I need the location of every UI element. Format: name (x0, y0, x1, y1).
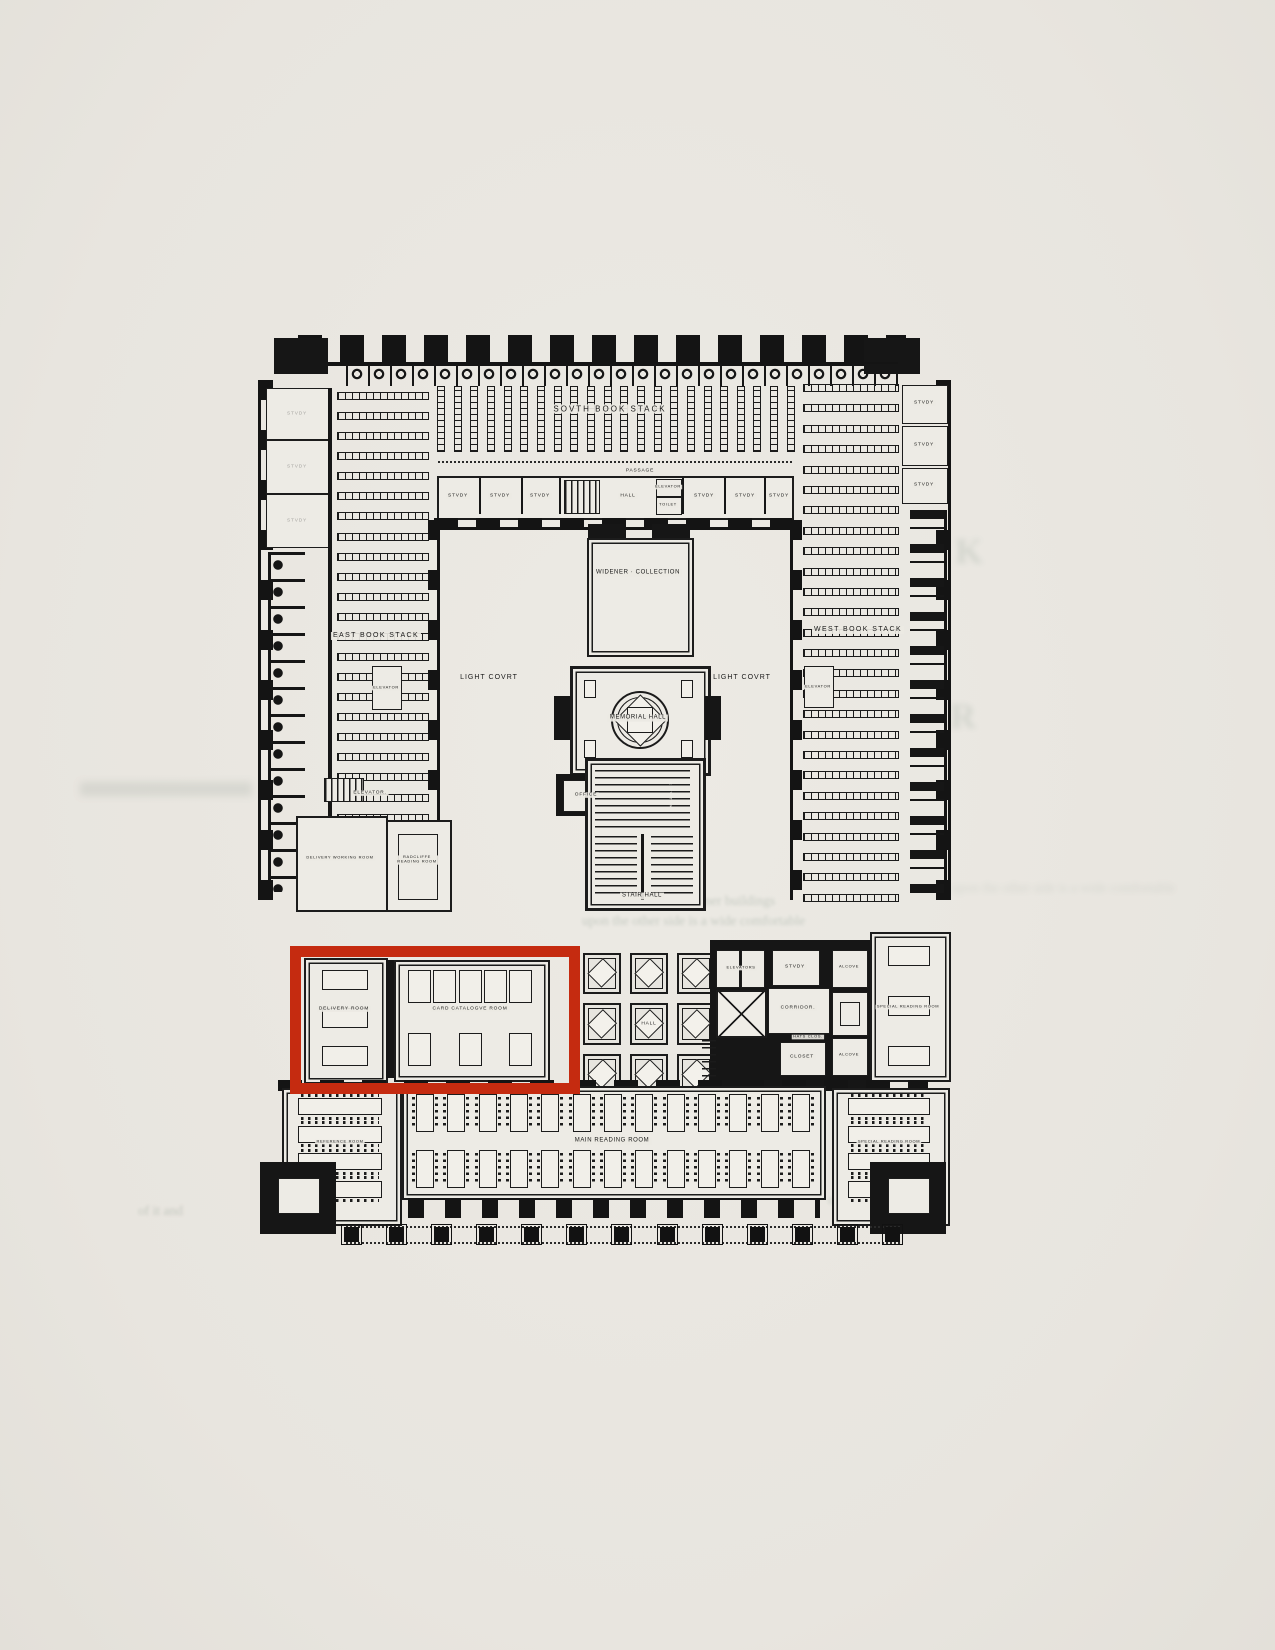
colshelf (520, 386, 528, 452)
memorial-hall-label: MEMORIAL HALL (608, 715, 668, 722)
pier (681, 740, 693, 758)
study-label: STVDY (767, 493, 790, 499)
study-label: STVDY (446, 493, 469, 499)
shelf (803, 527, 899, 535)
service-stair (702, 1040, 716, 1080)
bleed-letter: K (955, 530, 983, 572)
light-court-label: LIGHT COVRT (458, 674, 520, 682)
colshelf (687, 386, 695, 452)
hall-label: HALL (640, 1021, 658, 1027)
study-label: STVDY (733, 493, 756, 499)
shelf (803, 445, 899, 453)
shelf (803, 812, 899, 820)
shelf (337, 452, 429, 460)
alcove-label: ALCOVE (838, 965, 861, 970)
tblv (573, 1094, 591, 1132)
reference-room-label: REFERENCE ROOM (315, 1140, 365, 1145)
rect (888, 946, 930, 966)
portico-column (614, 1227, 629, 1242)
tblv (604, 1094, 622, 1132)
shelf (803, 568, 899, 576)
elevators-label: ELEVATORS (725, 966, 757, 971)
elevator-label: ELEVATOR (654, 485, 682, 490)
portico-column (750, 1227, 765, 1242)
tblv (667, 1094, 685, 1132)
colshelf (454, 386, 462, 452)
corridor (768, 988, 830, 1034)
alcove-mid-inner (840, 1002, 860, 1026)
tblv (792, 1094, 810, 1132)
pier (681, 680, 693, 698)
reading-tables-row (416, 1094, 810, 1130)
coffer-diamond (587, 959, 617, 989)
tblv (604, 1150, 622, 1188)
tblv (447, 1094, 465, 1132)
portico-column (660, 1227, 675, 1242)
bleed-letter: R (950, 695, 976, 737)
shelf (803, 547, 899, 555)
shelf (803, 792, 899, 800)
passage-label: PASSAGE (624, 468, 655, 474)
colshelf (587, 386, 595, 452)
shelf (803, 649, 899, 657)
room-label: STVDY (285, 518, 308, 524)
corridor-label: CORRIDOR. (779, 1005, 817, 1011)
widener-library-floor-plan: STVDY STVDY STVDY STVDY STVDY STVDY SOVT… (258, 330, 948, 1248)
hats-closet-label: HATS CLOS. (792, 1035, 824, 1040)
passage-line (438, 461, 792, 463)
portico-column (885, 1227, 900, 1242)
radcliffe-inner (398, 834, 438, 900)
partition (682, 478, 684, 514)
tblv (761, 1150, 779, 1188)
shelf (337, 512, 429, 520)
tblv (729, 1094, 747, 1132)
portico-colonnade (344, 1224, 900, 1244)
stair-flight (595, 836, 637, 898)
shelf (337, 492, 429, 500)
colshelf (637, 386, 645, 452)
coffer-bay (583, 953, 621, 994)
shelf (803, 588, 899, 596)
scanned-page: a catend the Widener buildings upon the … (0, 0, 1275, 1650)
tblv (416, 1094, 434, 1132)
colshelf (554, 386, 562, 452)
special-reading-room-label: SPECIAL READING ROOM (876, 1005, 941, 1010)
office-label: OFFICE (573, 792, 599, 798)
tblv (635, 1094, 653, 1132)
west-book-stack-label: WEST BOOK STACK (812, 626, 904, 634)
bleed-text: of it and (138, 1203, 183, 1219)
bleed-band (80, 782, 252, 796)
pier (584, 740, 596, 758)
tblv (667, 1150, 685, 1188)
entrance-vestibule: HALL (578, 948, 720, 1100)
widener-collection-room (587, 538, 694, 657)
colshelf (487, 386, 495, 452)
north-west-corner (274, 338, 328, 374)
shelf (803, 608, 899, 616)
side-porch (705, 696, 721, 740)
shelf (337, 573, 429, 581)
tblv (479, 1150, 497, 1188)
shelf (337, 533, 429, 541)
portico-column (795, 1227, 810, 1242)
main-reading-room-label: MAIN READING ROOM (573, 1138, 652, 1145)
pavilion-inset (888, 1178, 930, 1214)
shelf (803, 894, 899, 902)
room-label: STVDY (285, 464, 308, 470)
portico-column (389, 1227, 404, 1242)
widener-collection-label: WIDENER · COLLECTION (594, 570, 682, 577)
study-label: STVDY (783, 964, 806, 970)
shelf (803, 506, 899, 514)
study-label: STVDY (488, 493, 511, 499)
stairs (564, 480, 600, 514)
south-book-stack-shelving (434, 386, 798, 452)
coffer-bay: HALL (630, 1003, 668, 1044)
shelf (803, 466, 899, 474)
portico-column (705, 1227, 720, 1242)
tblv (510, 1150, 528, 1188)
portico-column (479, 1227, 494, 1242)
coffer-bay (630, 953, 668, 994)
tblv (792, 1150, 810, 1188)
east-book-stack-label: EAST BOOK STACK (331, 632, 421, 640)
portico-column (434, 1227, 449, 1242)
partition (724, 478, 726, 514)
partition (479, 478, 481, 514)
shelf (337, 432, 429, 440)
room-label: STVDY (285, 411, 308, 417)
study-label: STVDY (528, 493, 551, 499)
partition (559, 478, 561, 514)
colshelf (437, 386, 445, 452)
elevator-label: ELEVATOR (668, 781, 673, 809)
tblv (541, 1094, 559, 1132)
shelf (803, 873, 899, 881)
highlight-box (290, 946, 580, 1094)
shelf (803, 404, 899, 412)
shelf (337, 753, 429, 761)
closet-label: CLOSET (788, 1054, 815, 1060)
room-label: STVDY (912, 400, 935, 406)
shelf (337, 412, 429, 420)
colshelf (770, 386, 778, 452)
tblv (698, 1094, 716, 1132)
colshelf (620, 386, 628, 452)
coffer-diamond (681, 959, 711, 989)
delivery-working-room (296, 816, 388, 912)
colshelf (604, 386, 612, 452)
portico-column (840, 1227, 855, 1242)
shelf (337, 553, 429, 561)
stair-hall-label: STAIR HALL (620, 893, 664, 900)
tblv (541, 1150, 559, 1188)
side-porch (554, 696, 570, 740)
room-label: STVDY (912, 442, 935, 448)
portico-column (524, 1227, 539, 1242)
stair-steps (595, 770, 690, 828)
toilet-label: TOILET (658, 503, 678, 508)
colshelf (753, 386, 761, 452)
colshelf (737, 386, 745, 452)
stair-flight (651, 836, 693, 898)
bleed-text: upon the other side is a wide comfortabl… (952, 880, 1175, 896)
coffer-diamond (634, 959, 664, 989)
shelf (803, 771, 899, 779)
colshelf (720, 386, 728, 452)
tblv (573, 1150, 591, 1188)
shelf (803, 486, 899, 494)
colshelf (787, 386, 795, 452)
reading-tables-row (416, 1150, 810, 1186)
alcove-label: ALCOVE (838, 1053, 861, 1058)
portico-column (344, 1227, 359, 1242)
hall-label: HALL (619, 493, 637, 499)
radcliffe-line2: READING ROOM (397, 860, 436, 864)
study-label: STVDY (692, 493, 715, 499)
coffer-diamond (681, 1009, 711, 1039)
coffer-diamond (587, 1009, 617, 1039)
shelf (803, 751, 899, 759)
pier (584, 680, 596, 698)
colshelf (704, 386, 712, 452)
shelf (803, 731, 899, 739)
partition (521, 478, 523, 514)
shelf (803, 425, 899, 433)
special-reading-room-label: SPECIAL READING ROOM (857, 1140, 922, 1145)
tblv (510, 1094, 528, 1132)
colshelf (570, 386, 578, 452)
delivery-working-room-label: DELIVERY WORKING ROOM (305, 856, 375, 861)
colshelf (504, 386, 512, 452)
wall (588, 524, 626, 538)
south-book-stack-label: SOVTH BOOK STACK (551, 404, 668, 413)
tblv (635, 1150, 653, 1188)
colshelf (654, 386, 662, 452)
radcliffe-line1: RADCLIFFE (403, 855, 431, 859)
shelf (803, 833, 899, 841)
shelf (337, 733, 429, 741)
engaged-column-row (408, 1198, 820, 1218)
elevator-label: ELEVATOR. (352, 790, 389, 796)
wall (652, 524, 690, 538)
stair-rail (641, 834, 644, 900)
light-court-label: LIGHT COVRT (711, 674, 773, 682)
west-stack-court-wall (790, 520, 802, 900)
shelf (803, 710, 899, 718)
portico-column (569, 1227, 584, 1242)
shelf (337, 392, 429, 400)
tblv (479, 1094, 497, 1132)
west-book-stack-shelving (798, 382, 904, 904)
radcliffe-label: RADCLIFFE READING ROOM (396, 855, 438, 864)
shelf (337, 593, 429, 601)
shelf (337, 713, 429, 721)
rect (888, 1046, 930, 1066)
shelf (337, 653, 429, 661)
shelf (337, 472, 429, 480)
pavilion-inset (278, 1178, 320, 1214)
elevator-label: ELEVATOR (372, 686, 400, 691)
tblv (447, 1150, 465, 1188)
tblh (298, 1098, 382, 1115)
tblv (761, 1094, 779, 1132)
partition (764, 478, 766, 514)
tblv (698, 1150, 716, 1188)
elevator-shaft (716, 990, 767, 1038)
coffer-bay (583, 1003, 621, 1044)
colshelf (537, 386, 545, 452)
east-wall-alcoves (910, 510, 947, 895)
shelf (803, 853, 899, 861)
room-label: STVDY (912, 482, 935, 488)
tblh (848, 1098, 930, 1115)
tblv (729, 1150, 747, 1188)
colshelf (670, 386, 678, 452)
shelf (337, 613, 429, 621)
shelf (803, 384, 899, 392)
elevator-label: ELEVATOR (804, 685, 832, 690)
colshelf (470, 386, 478, 452)
tblv (416, 1150, 434, 1188)
